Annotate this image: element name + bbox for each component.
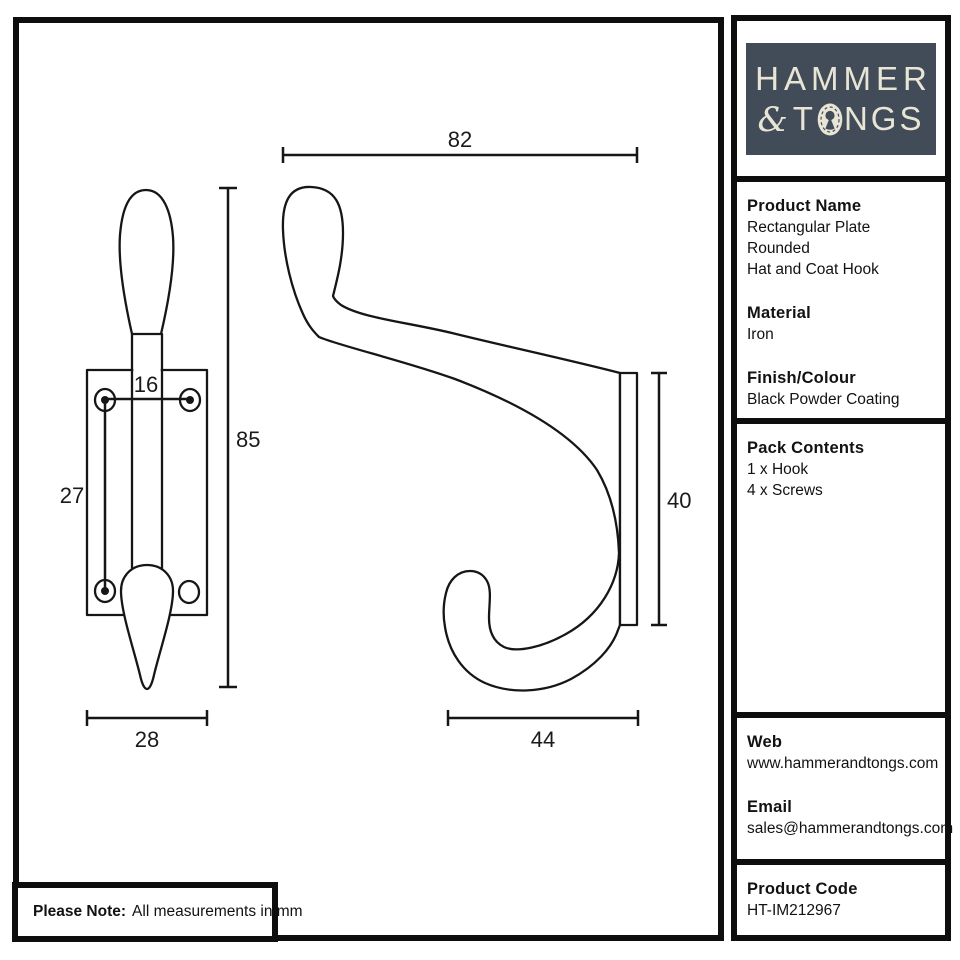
pack-contents-group: Pack Contents 1 x Hook 4 x Screws xyxy=(747,438,937,501)
pack-contents-section: Pack Contents 1 x Hook 4 x Screws xyxy=(737,424,945,718)
product-name-line1: Rectangular Plate Rounded xyxy=(747,217,937,259)
note-label: Please Note: xyxy=(33,903,126,921)
email-heading: Email xyxy=(747,797,937,818)
dim-dot xyxy=(101,587,109,595)
product-code-group: Product Code HT-IM212967 xyxy=(747,879,937,921)
brand-logo-section: HAMMER & T NGS xyxy=(737,21,945,182)
pack-contents-heading: Pack Contents xyxy=(747,438,937,459)
dim-label-side-depth: 82 xyxy=(448,127,472,152)
front-lower-teardrop xyxy=(121,565,173,689)
web-group: Web www.hammerandtongs.com xyxy=(747,732,937,774)
material-group: Material Iron xyxy=(747,303,937,345)
email-value: sales@hammerandtongs.com xyxy=(747,818,937,839)
dim-label-plate-height: 40 xyxy=(667,488,691,513)
front-shaft-fill xyxy=(133,334,160,580)
front-view-drawing: 16 27 85 28 xyxy=(60,188,261,752)
logo-ampersand: & xyxy=(758,107,791,134)
measurements-note: Please Note: All measurements in mm xyxy=(12,882,278,942)
product-code-value: HT-IM212967 xyxy=(747,900,937,921)
dim-label-hook-reach: 44 xyxy=(531,727,555,752)
product-name-group: Product Name Rectangular Plate Rounded H… xyxy=(747,196,937,280)
product-code-heading: Product Code xyxy=(747,879,937,900)
dim-label-front-height: 85 xyxy=(236,427,260,452)
dim-label-hole-spacing: 16 xyxy=(134,372,158,397)
note-text: All measurements in mm xyxy=(132,903,303,921)
front-upper-knob xyxy=(120,190,174,334)
web-value: www.hammerandtongs.com xyxy=(747,753,937,774)
finish-value: Black Powder Coating xyxy=(747,389,937,410)
spec-sheet-page: { "brand": { "word1": "HAMMER", "amp": "… xyxy=(0,0,960,960)
finish-group: Finish/Colour Black Powder Coating xyxy=(747,368,937,410)
material-heading: Material xyxy=(747,303,937,324)
web-heading: Web xyxy=(747,732,937,753)
logo-t: T xyxy=(793,102,816,135)
dim-label-hole-vertical: 27 xyxy=(60,483,84,508)
product-name-heading: Product Name xyxy=(747,196,937,217)
product-details-section: Product Name Rectangular Plate Rounded H… xyxy=(737,182,945,424)
contact-section: Web www.hammerandtongs.com Email sales@h… xyxy=(737,718,945,865)
product-name-line2: Hat and Coat Hook xyxy=(747,259,937,280)
logo-ngs: NGS xyxy=(844,102,925,135)
side-view-drawing: 82 40 44 xyxy=(283,127,692,752)
product-code-section: Product Code HT-IM212967 xyxy=(737,865,945,935)
keyhole-icon xyxy=(817,103,843,136)
dim-label-front-width: 28 xyxy=(135,727,159,752)
logo-word-tongs: & T NGS xyxy=(758,102,925,135)
pack-item-screws: 4 x Screws xyxy=(747,480,937,501)
material-value: Iron xyxy=(747,324,937,345)
pack-item-hook: 1 x Hook xyxy=(747,459,937,480)
product-info-sidebar: HAMMER & T NGS Product Name Rectangular … xyxy=(731,15,951,941)
finish-heading: Finish/Colour xyxy=(747,368,937,389)
dim-dot xyxy=(186,396,194,404)
side-hook-profile xyxy=(283,187,620,691)
hammer-and-tongs-logo: HAMMER & T NGS xyxy=(746,43,936,155)
side-plate xyxy=(620,373,637,625)
logo-word-hammer: HAMMER xyxy=(755,62,932,95)
email-group: Email sales@hammerandtongs.com xyxy=(747,797,937,839)
